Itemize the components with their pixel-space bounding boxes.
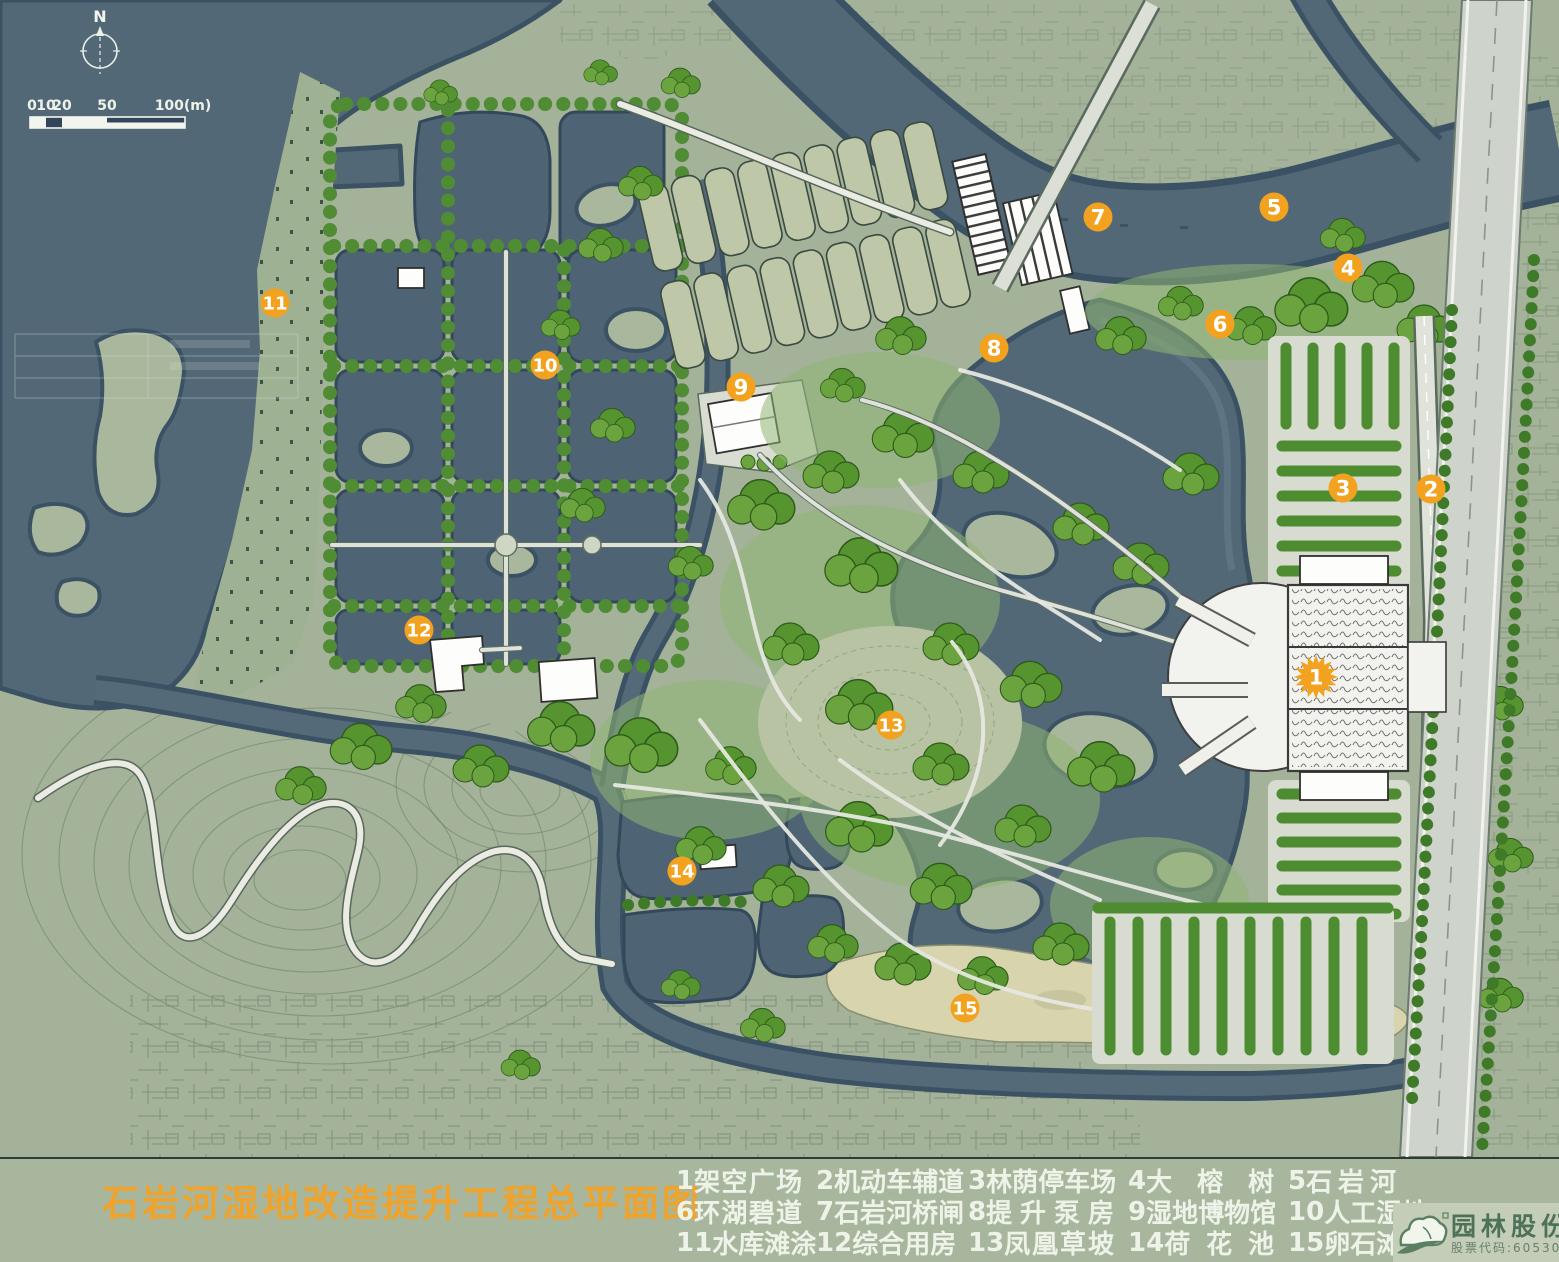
svg-text:11: 11: [262, 293, 287, 314]
svg-text:10: 10: [532, 355, 557, 376]
svg-text:7: 7: [1091, 206, 1106, 230]
legend-item-2: 2机动车辅道: [816, 1165, 968, 1196]
legend-item-13: 13凤凰草坡: [968, 1227, 1128, 1258]
legend-item-5: 5石岩河: [1288, 1165, 1410, 1196]
leaf-logo-icon: [1393, 1205, 1451, 1260]
legend-item-number: 14: [1128, 1228, 1164, 1258]
svg-text:6: 6: [1213, 313, 1228, 337]
page-title: 石岩河湿地改造提升工程总平面图: [102, 1173, 702, 1227]
legend-item-8: 8提升泵房: [968, 1196, 1128, 1227]
legend-item-14: 14荷花池: [1128, 1227, 1288, 1258]
legend-item-number: 4: [1128, 1166, 1146, 1196]
legend-item-number: 10: [1288, 1197, 1324, 1227]
stock-code: 股票代码:605303: [1451, 1239, 1559, 1256]
legend-item-6: 6环湖碧道: [676, 1196, 816, 1227]
legend-item-number: 15: [1288, 1228, 1324, 1258]
marker-4: 4: [1334, 254, 1363, 283]
scale-label: 20: [52, 98, 72, 114]
scale-label: 50: [97, 98, 117, 114]
legend-item-9: 9湿地博物馆: [1128, 1196, 1288, 1227]
legend: 1架空广场2机动车辅道3林荫停车场4大榕树5石岩河6环湖碧道7石岩河桥闸8提升泵…: [676, 1165, 1410, 1258]
svg-text:13: 13: [878, 715, 903, 736]
marker-6: 6: [1206, 310, 1235, 339]
legend-item-number: 2: [816, 1166, 834, 1196]
svg-text:5: 5: [1267, 196, 1282, 220]
marker-10: 10: [531, 351, 560, 380]
site-plan-page: N 0102050100(m) 123456789101112131415 石岩…: [0, 0, 1559, 1262]
master-plan-map: N 0102050100(m) 123456789101112131415: [0, 0, 1559, 1157]
legend-item-12: 12综合用房: [816, 1227, 968, 1258]
svg-text:12: 12: [406, 620, 431, 641]
svg-text:3: 3: [1336, 477, 1351, 501]
marker-13: 13: [877, 711, 906, 740]
svg-text:2: 2: [1424, 478, 1439, 502]
legend-item-3: 3林荫停车场: [968, 1165, 1128, 1196]
marker-8: 8: [980, 334, 1009, 363]
marker-3: 3: [1329, 474, 1358, 503]
legend-item-number: 7: [816, 1197, 834, 1227]
company-logo: 园林股份 股票代码:605303: [1393, 1205, 1555, 1260]
legend-item-11: 11水库滩涂: [676, 1227, 816, 1258]
legend-item-number: 3: [968, 1166, 986, 1196]
marker-11: 11: [261, 289, 290, 318]
legend-item-number: 11: [676, 1228, 712, 1258]
svg-text:4: 4: [1341, 257, 1356, 281]
legend-item-1: 1架空广场: [676, 1165, 816, 1196]
marker-9: 9: [727, 373, 756, 402]
svg-text:15: 15: [952, 998, 977, 1019]
legend-item-label: 卵石滩: [1324, 1224, 1402, 1261]
legend-item-number: 5: [1288, 1166, 1306, 1196]
svg-text:8: 8: [987, 337, 1002, 361]
company-name: 园林股份: [1451, 1207, 1559, 1243]
legend-item-10: 10人工湿地: [1288, 1196, 1410, 1227]
marker-15: 15: [951, 994, 980, 1023]
legend-item-label: 凤凰草坡: [1004, 1224, 1114, 1261]
legend-item-number: 6: [676, 1197, 694, 1227]
north-label: N: [93, 7, 106, 26]
marker-14: 14: [668, 857, 697, 886]
marker-7: 7: [1084, 203, 1113, 232]
legend-item-number: 12: [816, 1228, 852, 1258]
legend-item-number: 1: [676, 1166, 694, 1196]
legend-item-number: 13: [968, 1228, 1004, 1258]
legend-item-15: 15卵石滩: [1288, 1227, 1410, 1258]
svg-text:9: 9: [734, 376, 749, 400]
legend-item-number: 8: [968, 1197, 986, 1227]
svg-text:1: 1: [1309, 666, 1324, 690]
svg-text:14: 14: [669, 861, 694, 882]
marker-5: 5: [1260, 193, 1289, 222]
marker-12: 12: [405, 616, 434, 645]
legend-item-number: 9: [1128, 1197, 1146, 1227]
legend-item-label: 荷花池: [1164, 1224, 1274, 1261]
marker-1: 1: [1294, 655, 1338, 699]
legend-item-7: 7石岩河桥闸: [816, 1196, 968, 1227]
legend-item-label: 水库滩涂: [712, 1224, 816, 1261]
legend-item-label: 综合用房: [852, 1224, 956, 1261]
legend-item-4: 4大榕树: [1128, 1165, 1288, 1196]
marker-2: 2: [1417, 475, 1446, 504]
bottom-bar: 石岩河湿地改造提升工程总平面图 1架空广场2机动车辅道3林荫停车场4大榕树5石岩…: [0, 1157, 1559, 1262]
scale-label: 100(m): [155, 98, 212, 114]
